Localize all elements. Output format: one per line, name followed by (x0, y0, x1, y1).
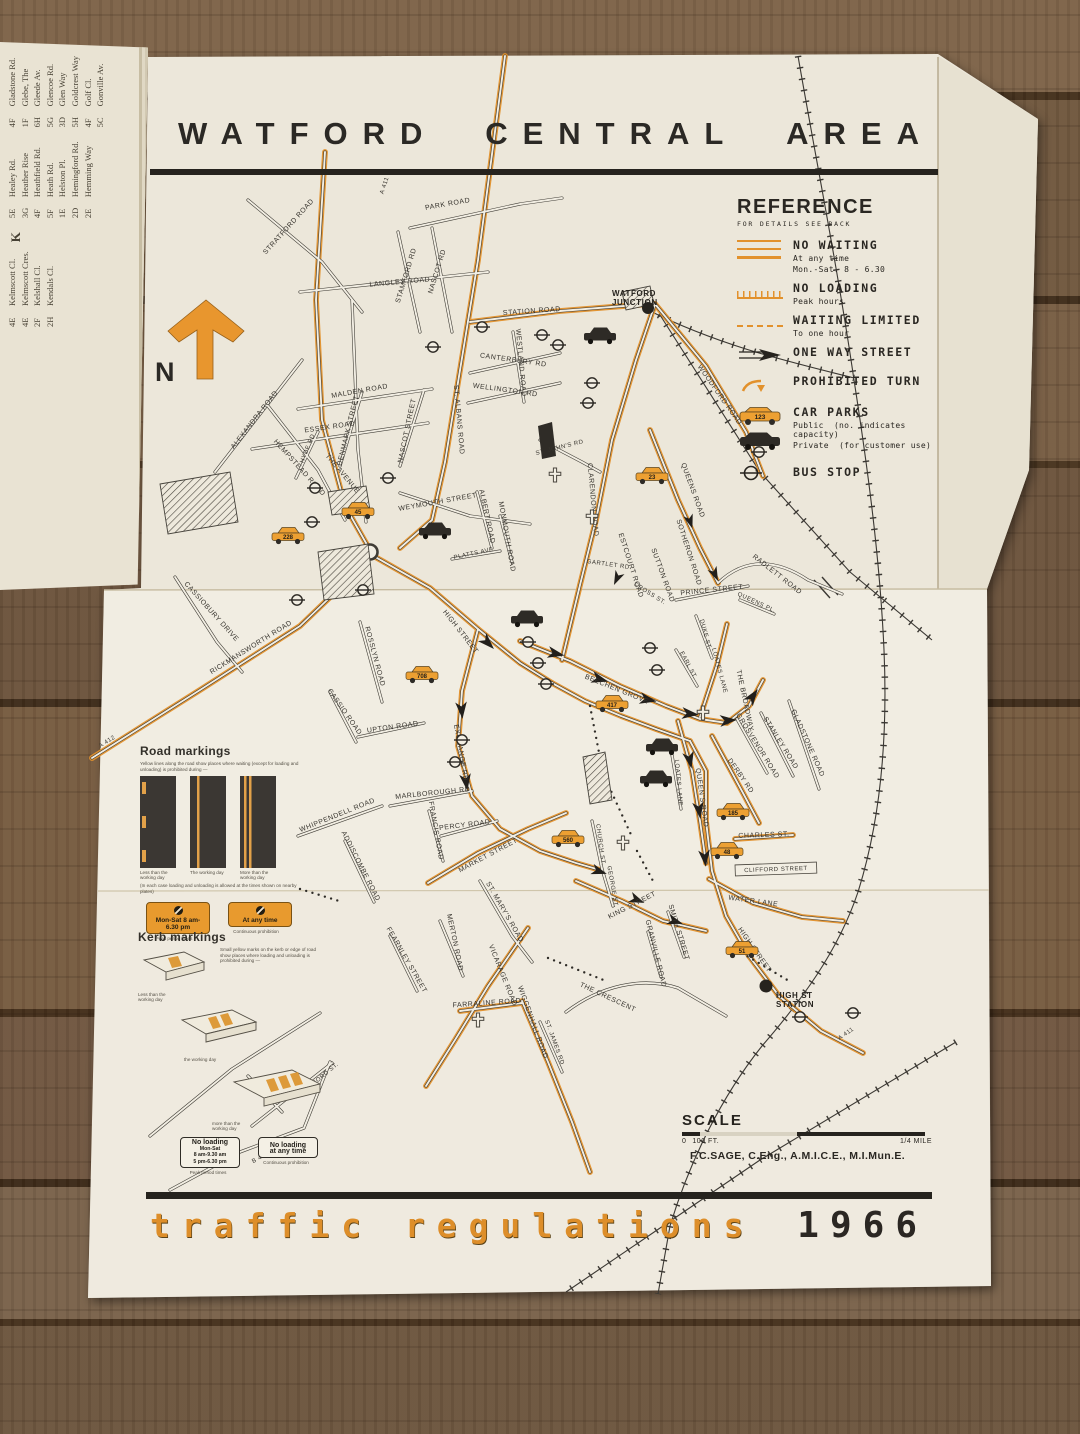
title-rule (150, 169, 938, 175)
one-way-arrow-icon (737, 347, 785, 363)
index-grid-ref: 5E (6, 202, 19, 218)
no-loading-line-icon (737, 291, 783, 299)
index-grid-ref: 4F (31, 202, 44, 218)
station-label: HIGH STSTATION (776, 991, 814, 1009)
bus-stop-icon (737, 464, 767, 482)
map-title: WATFORDCENTRALAREA (178, 116, 934, 152)
scale-bar (682, 1132, 925, 1136)
index-grid-ref: 4E (6, 311, 19, 327)
cartographer-credit: F.C.SAGE, C.Eng., A.M.I.C.E., M.I.Mun.E. (690, 1150, 936, 1162)
road-markings-note: (In each case loading and unloading is a… (140, 883, 306, 894)
sheet-fold-flap (938, 56, 1038, 589)
fold-crease-upper (104, 589, 987, 590)
svg-text:JUNCTION: JUNCTION (612, 298, 658, 307)
wood-table-background: NPARK ROADSTRATFORD ROADSTAMFORD RDNASCO… (0, 0, 1080, 1434)
index-street-name: Kendals Cl. (44, 251, 57, 306)
index-street-name: Heather Rise (19, 141, 32, 197)
index-street-name: Goldcrest Way (69, 56, 82, 106)
kerb-two-stripe-icon (174, 1002, 284, 1050)
index-grid-ref: 5C (94, 111, 107, 127)
legend-no-waiting: NO WAITING At any time Mon.-Sat. 8 - 6.3… (737, 238, 939, 274)
index-grid-ref: 4E (19, 311, 32, 327)
index-street-name: Kelshall Cl. (31, 251, 44, 306)
road-strip-single-line (190, 776, 226, 868)
car-park-icons: 123 (737, 407, 789, 451)
station-label: WATFORDJUNCTION (612, 289, 658, 307)
legend-one-way: ONE WAY STREET (737, 345, 939, 367)
scale-block: SCALE 0100 FT. 1/4 MILE (682, 1112, 932, 1145)
car-park-capacity-sample: 123 (755, 414, 766, 421)
index-grid-ref: 1E (56, 202, 69, 218)
index-street-name: Heathfield Rd. (31, 141, 44, 197)
map-title-word: AREA (786, 116, 934, 152)
index-group: 4E4E2F2HKelmscott Cl.Kelmscott Cres.Kels… (6, 232, 148, 327)
road-strip-double-line (240, 776, 276, 868)
map-title-word: CENTRAL (485, 116, 738, 152)
index-street-name: Heath Rd. (44, 141, 57, 197)
street-index-content: 4E4E2F2HKelmscott Cl.Kelmscott Cres.Kels… (0, 42, 148, 590)
index-letter-header: K (8, 232, 148, 242)
footer-rule (146, 1192, 932, 1199)
index-street-name: Golf Cl. (82, 56, 95, 106)
index-street-name: Gleede Av. (31, 56, 44, 106)
svg-text:STATION: STATION (776, 1000, 814, 1009)
no-waiting-anytime-sign: At any time (228, 902, 292, 927)
index-group: 4F1F6H5G3D5H4F5CGladstone Rd.Glebe, TheG… (6, 56, 148, 127)
index-grid-ref: 5F (44, 202, 57, 218)
car-park-capacity: 23 (649, 475, 656, 481)
kerb-markings-title: Kerb markings (138, 930, 334, 944)
index-grid-ref: 2F (31, 311, 44, 327)
no-waiting-symbol (256, 906, 265, 915)
road-strip-ticks (140, 776, 176, 868)
index-street-name: Glen Way (56, 56, 69, 106)
kerb-markings-intro: Small yellow marks on the kerb or edge o… (220, 947, 316, 987)
kerb-one-stripe-icon (138, 944, 212, 990)
road-markings-legend: Road markings Yellow lines along the roa… (140, 744, 306, 941)
index-grid-ref: 1F (19, 111, 32, 127)
reference-subtitle: FOR DETAILS SEE BACK (737, 220, 939, 228)
waiting-limited-line-icon (737, 321, 783, 327)
index-grid-ref: 2E (82, 202, 95, 218)
index-grid-ref: 3D (56, 111, 69, 127)
legend-car-parks: 123 CAR PARKS Public (no. indicates capa… (737, 405, 939, 455)
reference-title: REFERENCE (737, 196, 939, 219)
index-street-name: Healey Rd. (6, 141, 19, 197)
index-grid-ref: 4F (6, 111, 19, 127)
svg-text:HIGH ST: HIGH ST (776, 991, 813, 1000)
index-street-name: Hemming Way (82, 141, 95, 197)
car-park-capacity: 417 (607, 703, 618, 709)
car-park-capacity: 45 (355, 510, 362, 516)
index-grid-ref: 4F (82, 111, 95, 127)
index-grid-ref: 3G (19, 202, 32, 218)
index-street-name: Gonville Av. (94, 56, 107, 106)
no-loading-anytime-sign: No loading at any time (258, 1137, 318, 1158)
car-park-capacity: 185 (728, 811, 739, 817)
map-title-word: WATFORD (178, 116, 437, 152)
index-street-name: Glencoe Rd. (44, 56, 57, 106)
road-markings-intro: Yellow lines along the road show places … (140, 761, 306, 772)
legend-bus-stop: BUS STOP (737, 462, 939, 486)
footer-title-row: traffic regulations 1966 (150, 1205, 928, 1246)
index-grid-ref: 2H (44, 311, 57, 327)
legend-waiting-limited: WAITING LIMITED To one hour (737, 313, 939, 338)
car-park-capacity: 51 (739, 949, 746, 955)
car-park-capacity: 48 (724, 850, 731, 856)
no-waiting-monsat-line-icon (737, 256, 781, 259)
high-st-station-dot (760, 980, 773, 993)
index-street-name: Glebe, The (19, 56, 32, 106)
kerb-three-stripe-icon (226, 1062, 366, 1114)
legend-no-loading: NO LOADING Peak hours (737, 281, 939, 306)
car-park-capacity: 560 (563, 838, 574, 844)
legend-prohibited-turn: PROHIBITED TURN (737, 374, 939, 398)
footer-year: 1966 (797, 1205, 928, 1246)
scale-label: SCALE (682, 1112, 932, 1129)
no-waiting-symbol (174, 906, 183, 915)
reference-legend: REFERENCE FOR DETAILS SEE BACK NO WAITIN… (737, 196, 939, 493)
index-street-name: Helston Pl. (56, 141, 69, 197)
no-loading-monsat-sign: No loading Mon-Sat 8 am-9.30 am 5 pm-6.3… (180, 1137, 240, 1168)
index-grid-ref: 5H (69, 111, 82, 127)
no-waiting-any-time-line-icon (737, 240, 781, 250)
car-park-capacity: 228 (283, 535, 294, 541)
index-street-name: Kelmscott Cres. (19, 251, 32, 306)
index-grid-ref: 5G (44, 111, 57, 127)
footer-title: traffic regulations (150, 1206, 756, 1245)
index-street-name: Gladstone Rd. (6, 56, 19, 106)
north-label: N (155, 357, 175, 387)
index-grid-ref: 2D (69, 202, 82, 218)
svg-text:WATFORD: WATFORD (612, 289, 656, 298)
car-park-capacity: 708 (417, 674, 428, 680)
prohibited-turn-icon (737, 376, 785, 394)
index-street-name: Hemingford Rd. (69, 141, 82, 197)
road-markings-title: Road markings (140, 744, 306, 758)
index-street-name: Kelmscott Cl. (6, 251, 19, 306)
index-group: 5E3G4F5F1E2D2EHealey Rd.Heather RiseHeat… (6, 141, 148, 218)
index-grid-ref: 6H (31, 111, 44, 127)
kerb-markings-legend: Kerb markings Small yellow marks on the … (138, 930, 334, 1175)
